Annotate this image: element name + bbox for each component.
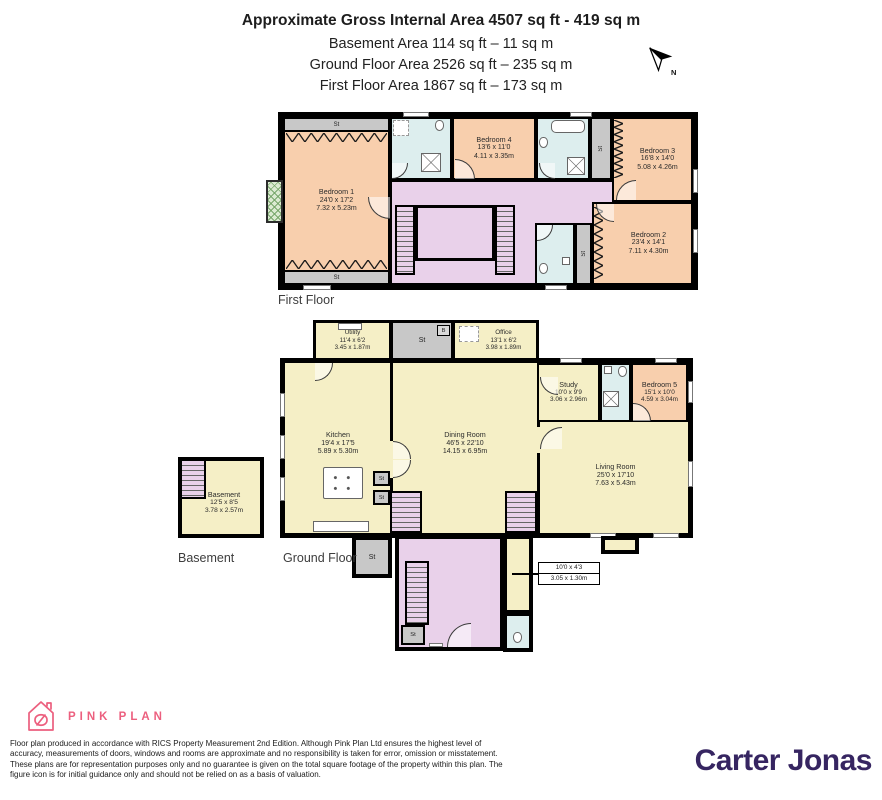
window-marker bbox=[303, 285, 331, 290]
staircase bbox=[390, 491, 422, 533]
room-name: Bedroom 3 bbox=[637, 147, 677, 156]
window-marker bbox=[655, 358, 677, 363]
storage-cupboard: St bbox=[373, 471, 390, 486]
pink-plan-house-icon bbox=[24, 698, 58, 734]
room-dims-ft: 12'5 x 8'5 bbox=[205, 499, 243, 507]
storage-strip: St bbox=[575, 223, 592, 285]
room-dims-ft: 23'4 x 14'1 bbox=[629, 239, 669, 248]
room-name: Utility bbox=[335, 329, 371, 336]
room-dims-m: 7.63 x 5.43m bbox=[595, 480, 635, 489]
shower-tray bbox=[393, 120, 409, 136]
north-label: N bbox=[671, 68, 676, 77]
room-wc bbox=[503, 612, 533, 652]
storage-label: St bbox=[581, 251, 587, 257]
ground-area-line: Ground Floor Area 2526 sq ft – 235 sq m bbox=[0, 57, 882, 73]
storage-cupboard: St bbox=[373, 490, 390, 505]
room-dims-ft: 15'1 x 10'0 bbox=[641, 389, 678, 397]
room-dims-m: 4.11 x 3.35m bbox=[474, 153, 514, 162]
room-name: Kitchen bbox=[318, 431, 358, 440]
bathtub bbox=[551, 120, 585, 133]
living-label: Living Room 25'0 x 17'10 7.63 x 5.43m bbox=[543, 463, 688, 489]
room-dims-m: 7.11 x 4.30m bbox=[629, 248, 669, 257]
storage-strip: St bbox=[590, 117, 612, 180]
carter-jonas-logo: Carter Jonas bbox=[695, 744, 872, 778]
toilet bbox=[539, 137, 548, 148]
staircase bbox=[505, 491, 537, 533]
wardrobe-zigzag bbox=[286, 260, 387, 269]
storage-room: St bbox=[352, 536, 392, 578]
boiler-box: B bbox=[437, 325, 450, 336]
window-marker bbox=[560, 358, 582, 363]
window-marker bbox=[280, 393, 285, 417]
toilet bbox=[435, 120, 444, 131]
basement-area-line: Basement Area 114 sq ft – 11 sq m bbox=[0, 36, 882, 52]
kitchen-label: Kitchen 19'4 x 17'5 5.89 x 5.30m bbox=[290, 431, 386, 457]
room-dims-m: 3.45 x 1.87m bbox=[335, 344, 371, 351]
window-marker bbox=[693, 229, 698, 253]
storage-label: St bbox=[419, 337, 426, 344]
room-name: Bedroom 4 bbox=[474, 136, 514, 145]
shower bbox=[567, 157, 585, 175]
door-threshold bbox=[429, 643, 443, 647]
toilet bbox=[618, 366, 627, 377]
window-marker bbox=[280, 477, 285, 501]
room-dims-ft: 13'6 x 11'0 bbox=[474, 144, 514, 153]
basin bbox=[604, 366, 612, 374]
storage-label: St bbox=[379, 476, 384, 482]
first-area-line: First Floor Area 1867 sq ft – 173 sq m bbox=[0, 78, 882, 94]
header: Approximate Gross Internal Area 4507 sq … bbox=[0, 12, 882, 99]
storage-label: St bbox=[334, 122, 340, 128]
staircase bbox=[405, 561, 429, 625]
toilet bbox=[539, 263, 548, 274]
storage-strip: St bbox=[283, 270, 390, 285]
room-dims-m: 3.78 x 2.57m bbox=[205, 507, 243, 515]
shower bbox=[421, 153, 441, 172]
basin bbox=[562, 257, 570, 265]
kitchen-island bbox=[323, 467, 363, 499]
room-dims-m: 3.98 x 1.89m bbox=[486, 344, 522, 351]
sink-counter bbox=[338, 323, 362, 330]
room-office: Office 13'1 x 6'2 3.98 x 1.89m bbox=[452, 320, 539, 361]
shower-tray bbox=[459, 326, 479, 342]
chimney-bay bbox=[601, 536, 639, 554]
entrance-hall: St bbox=[395, 535, 504, 651]
room-dims-m: 5.89 x 5.30m bbox=[318, 448, 358, 457]
storage-strip: St bbox=[283, 117, 390, 132]
front-door-arc bbox=[447, 623, 471, 647]
shower bbox=[603, 391, 619, 407]
room-dims-ft: 25'0 x 17'10 bbox=[595, 472, 635, 481]
room-dims-ft: 24'0 x 17'2 bbox=[316, 197, 356, 206]
page-title: Approximate Gross Internal Area 4507 sq … bbox=[0, 12, 882, 30]
callout-dims-m: 3.05 x 1.30m bbox=[539, 574, 599, 584]
door-arc bbox=[540, 427, 562, 449]
storage-label: St bbox=[334, 275, 340, 281]
storage-label: St bbox=[379, 495, 384, 501]
wardrobe-zigzag bbox=[286, 133, 387, 142]
sink-counter bbox=[313, 521, 369, 532]
window-bay bbox=[266, 180, 283, 223]
room-dims-m: 3.06 x 2.96m bbox=[550, 396, 587, 404]
floorplan-canvas: Approximate Gross Internal Area 4507 sq … bbox=[0, 0, 882, 800]
door-arc bbox=[393, 460, 411, 478]
room-name: Basement bbox=[205, 491, 243, 499]
room-dims-m: 5.08 x 4.26m bbox=[637, 164, 677, 173]
window-marker bbox=[545, 285, 567, 290]
storage-label: St bbox=[598, 146, 604, 152]
boiler-label: B bbox=[442, 328, 446, 334]
storage-cupboard: St bbox=[401, 625, 425, 645]
first-floor-label: First Floor bbox=[278, 293, 334, 307]
room-dims-ft: 46'5 x 22'10 bbox=[443, 440, 487, 449]
ground-floor-plan: Study 10'0 x 9'9 3.06 x 2.96m Bedroom 5 … bbox=[280, 358, 693, 538]
room-dims-ft: 13'1 x 6'2 bbox=[486, 337, 522, 344]
toilet bbox=[513, 632, 522, 643]
ground-floor-label: Ground Floor bbox=[283, 551, 357, 565]
room-dims-m: 7.32 x 5.23m bbox=[316, 205, 356, 214]
first-floor-plan: Bedroom 1 24'0 x 17'2 7.32 x 5.23m St St… bbox=[278, 112, 698, 290]
window-marker bbox=[693, 169, 698, 193]
staircase bbox=[395, 205, 415, 275]
room-name: Bedroom 1 bbox=[316, 188, 356, 197]
room-name: Dining Room bbox=[443, 431, 487, 440]
window-marker bbox=[403, 112, 429, 117]
basement-label-block: Basement 12'5 x 8'5 3.78 x 2.57m bbox=[190, 491, 258, 515]
window-marker bbox=[688, 381, 693, 403]
room-dims-m: 14.15 x 6.95m bbox=[443, 448, 487, 457]
storage-label: St bbox=[410, 632, 415, 638]
stairwell bbox=[415, 205, 495, 261]
corridor-callout: 10'0 x 4'3 3.05 x 1.30m bbox=[538, 562, 600, 585]
staircase bbox=[495, 205, 515, 275]
callout-dims-ft: 10'0 x 4'3 bbox=[539, 563, 599, 574]
room-name: Office bbox=[486, 329, 522, 336]
pink-plan-brand: PINK PLAN bbox=[68, 711, 166, 723]
window-marker bbox=[688, 461, 693, 487]
window-marker bbox=[653, 533, 679, 538]
room-dims-ft: 16'8 x 14'0 bbox=[637, 155, 677, 164]
room-dims-ft: 11'4 x 6'2 bbox=[335, 337, 371, 344]
storage-label: St bbox=[369, 554, 376, 561]
room-dims-ft: 19'4 x 17'5 bbox=[318, 440, 358, 449]
room-name: Bedroom 2 bbox=[629, 231, 669, 240]
window-marker bbox=[280, 435, 285, 459]
storage-room: St B bbox=[390, 320, 454, 361]
callout-leader bbox=[512, 573, 538, 575]
door-arc bbox=[315, 363, 333, 381]
room-utility: Utility 11'4 x 6'2 3.45 x 1.87m bbox=[313, 320, 392, 361]
disclaimer-text: Floor plan produced in accordance with R… bbox=[10, 739, 516, 781]
basement-floor-label: Basement bbox=[178, 551, 234, 565]
wall bbox=[537, 453, 540, 533]
wardrobe-zigzag bbox=[614, 120, 623, 178]
room-study: Study 10'0 x 9'9 3.06 x 2.96m bbox=[537, 363, 600, 422]
wall bbox=[390, 363, 393, 441]
window-marker bbox=[570, 112, 592, 117]
room-dims-m: 4.59 x 3.04m bbox=[641, 396, 678, 404]
room-name: Bedroom 5 bbox=[641, 381, 678, 389]
dining-label: Dining Room 46'5 x 22'10 14.15 x 6.95m bbox=[395, 431, 535, 457]
room-name: Living Room bbox=[595, 463, 635, 472]
basement-plan: Basement 12'5 x 8'5 3.78 x 2.57m bbox=[178, 457, 264, 538]
